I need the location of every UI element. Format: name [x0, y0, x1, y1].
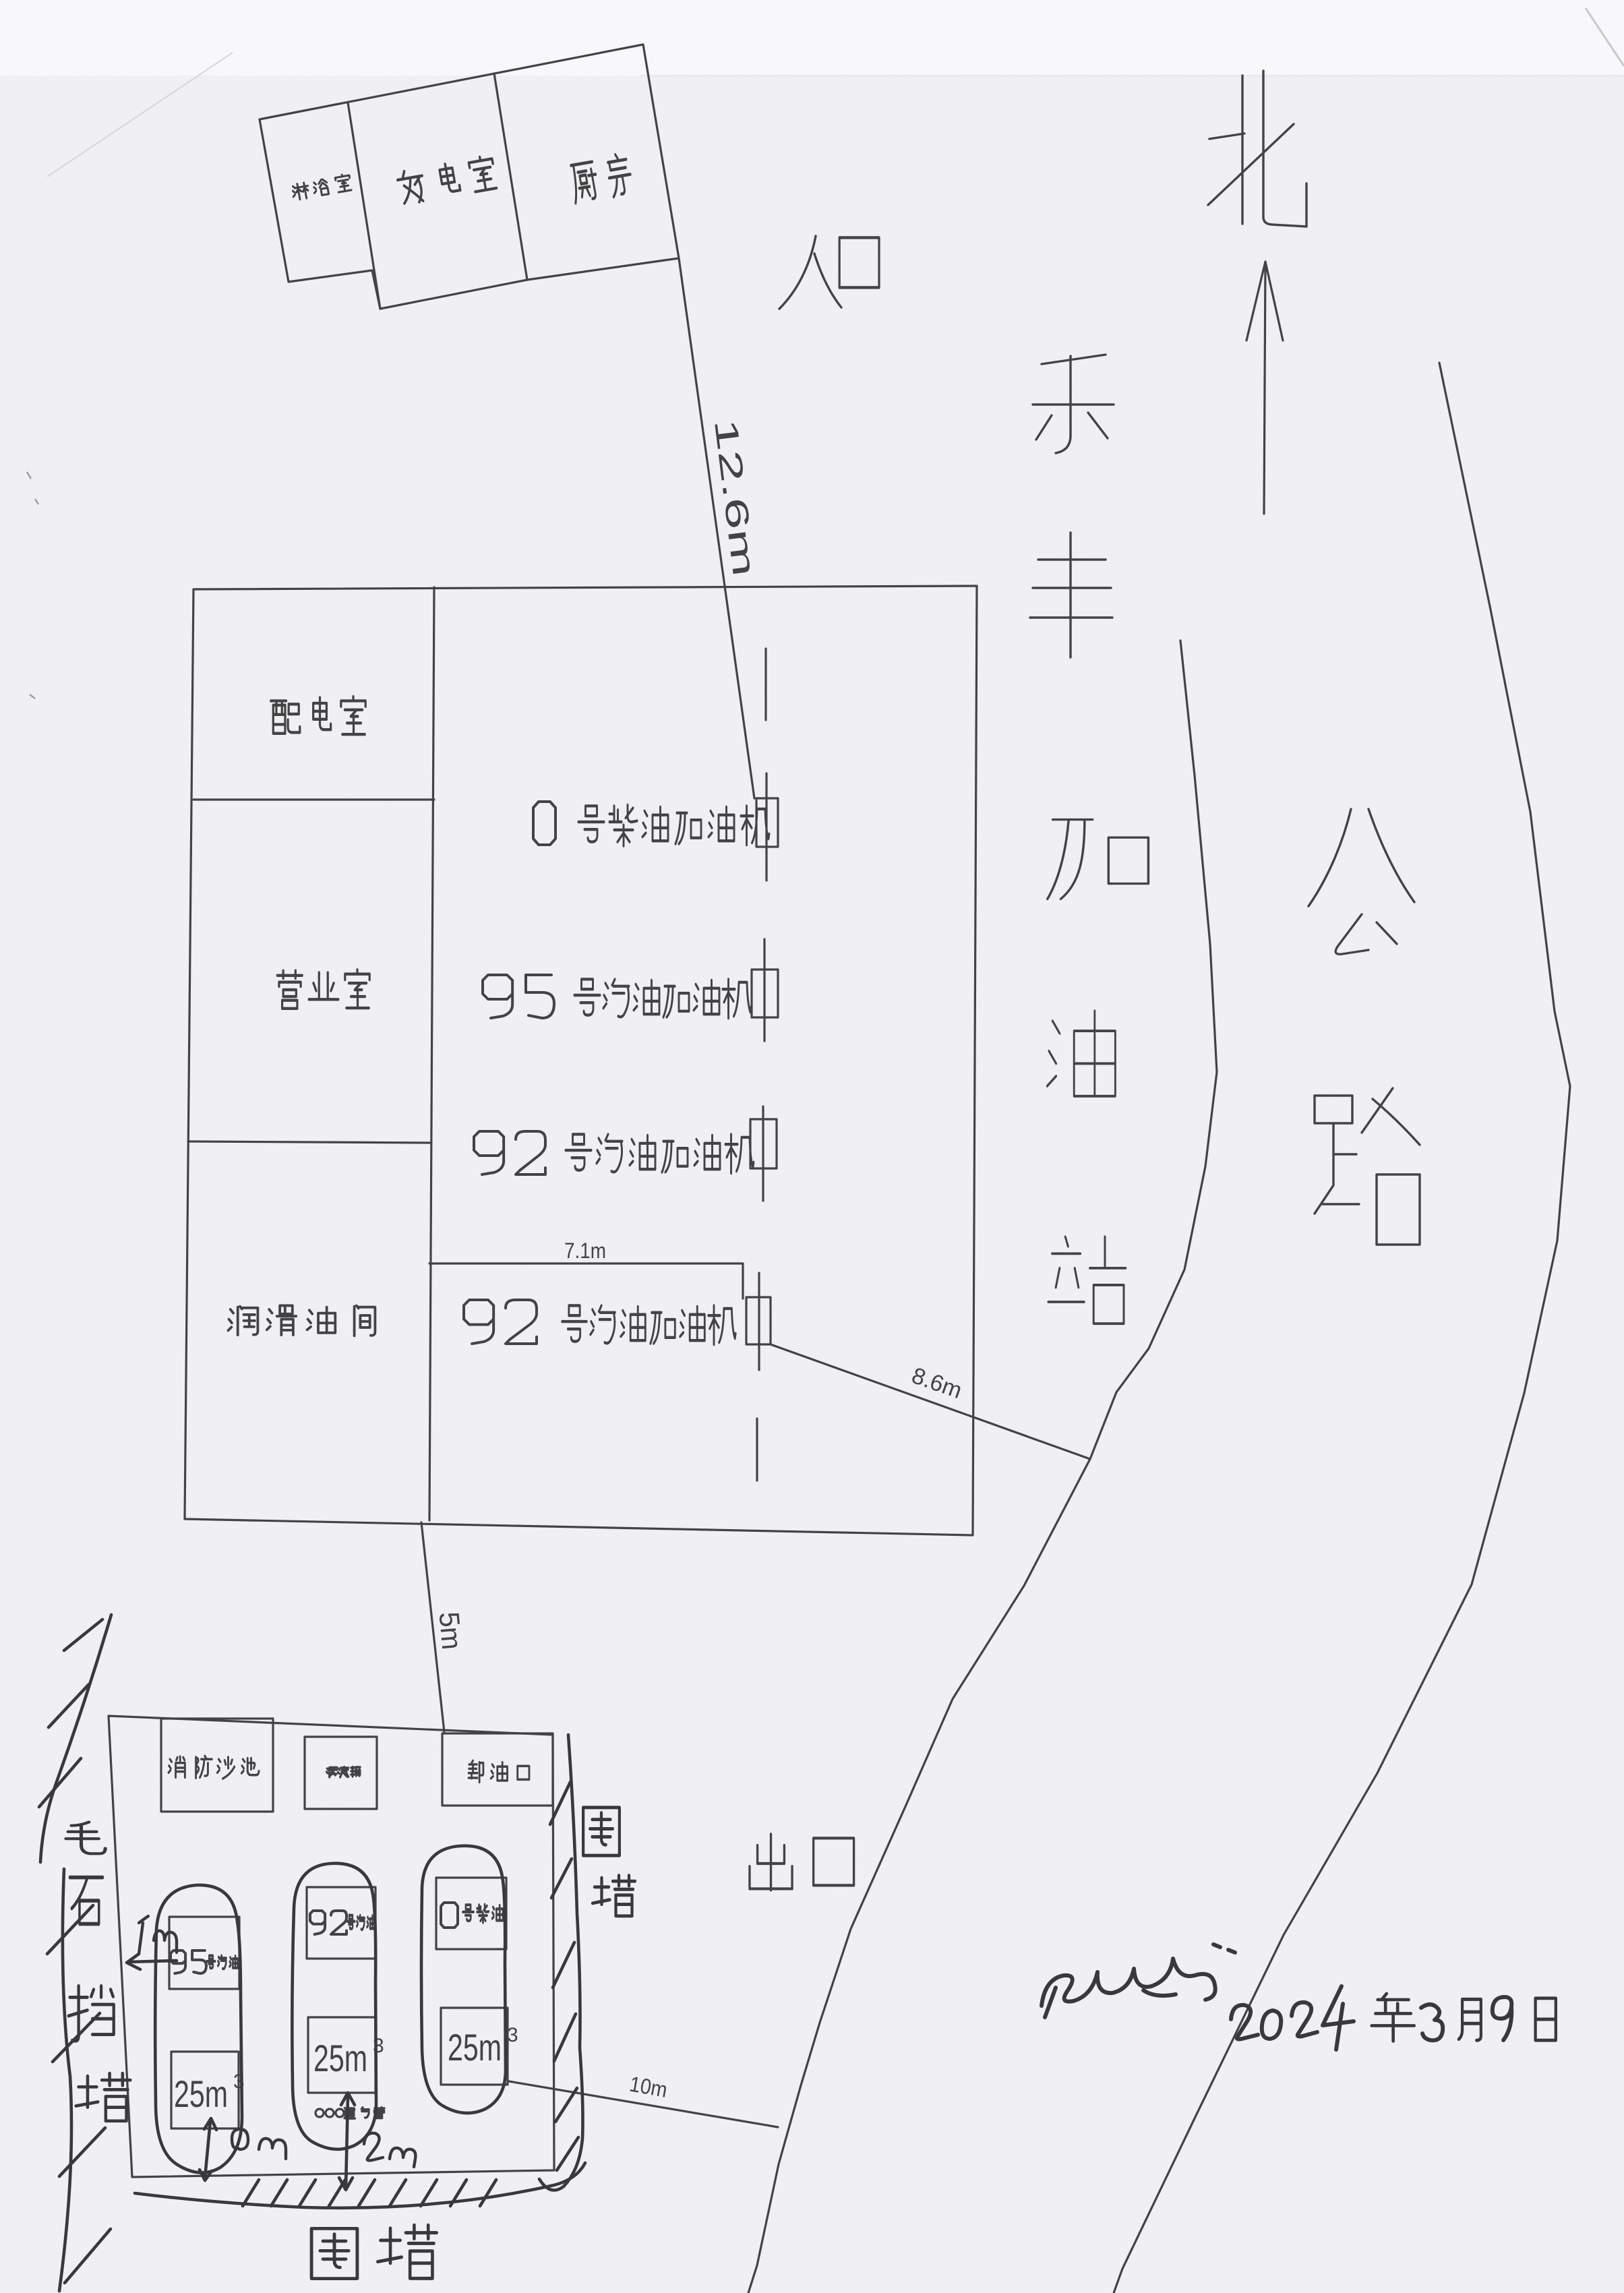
svg-text:7.1m: 7.1m — [564, 1239, 606, 1263]
svg-text:5m: 5m — [433, 1611, 469, 1651]
svg-text:25m: 25m — [313, 2037, 367, 2079]
svg-text:25m: 25m — [174, 2073, 228, 2115]
svg-text:3: 3 — [507, 2024, 518, 2046]
svg-text:25m: 25m — [448, 2026, 502, 2068]
